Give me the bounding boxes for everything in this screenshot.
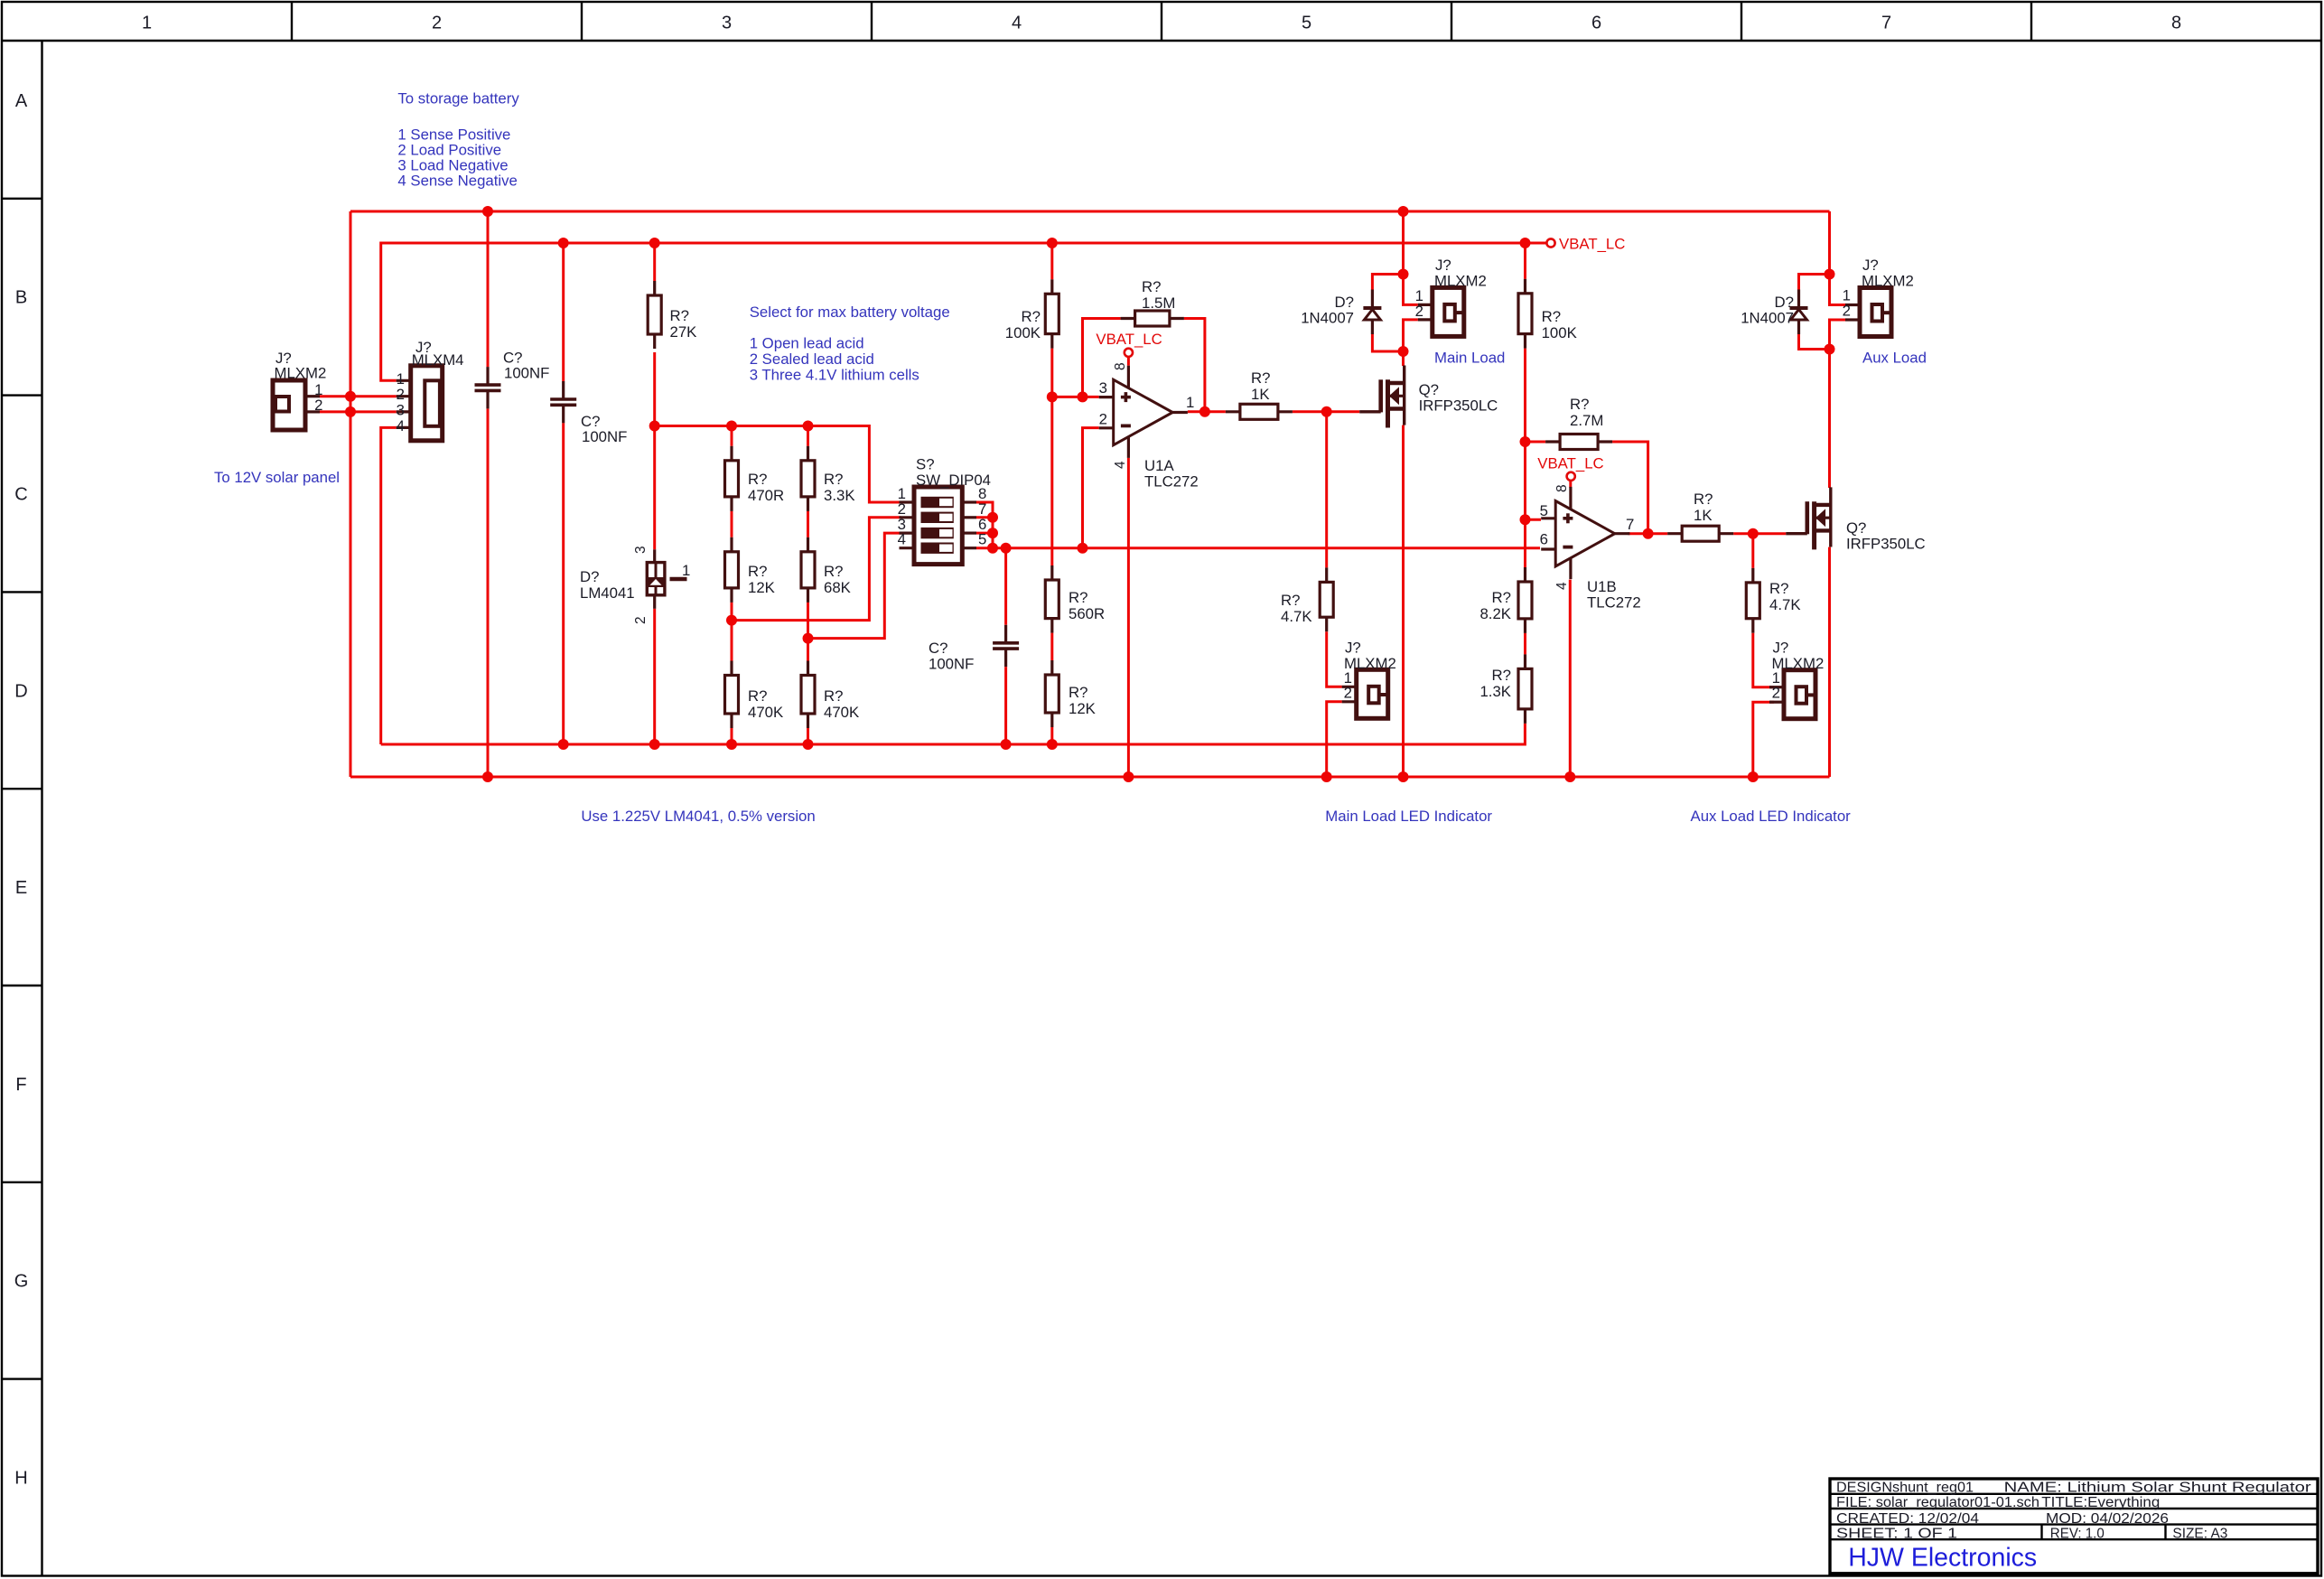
svg-text:470K: 470K [748, 704, 783, 721]
svg-text:5: 5 [978, 531, 986, 548]
svg-text:3 Three 4.1V lithium cells: 3 Three 4.1V lithium cells [750, 366, 919, 383]
svg-text:1: 1 [682, 562, 690, 579]
svg-text:8: 8 [1113, 362, 1128, 370]
svg-text:1 Open lead acid: 1 Open lead acid [750, 335, 864, 352]
svg-text:C?: C? [503, 349, 522, 366]
svg-text:100K: 100K [1542, 324, 1577, 341]
svg-text:1.3K: 1.3K [1479, 683, 1511, 700]
svg-text:7: 7 [1626, 516, 1634, 533]
svg-text:VBAT_LC: VBAT_LC [1537, 455, 1603, 472]
svg-text:2: 2 [1772, 685, 1780, 702]
svg-text:6: 6 [1540, 531, 1548, 548]
svg-text:3: 3 [722, 14, 732, 33]
svg-text:Select for max battery voltage: Select for max battery voltage [750, 304, 950, 321]
svg-text:Aux Load LED Indicator: Aux Load LED Indicator [1691, 808, 1852, 825]
svg-text:IRFP350LC: IRFP350LC [1846, 536, 1926, 553]
svg-text:B: B [15, 288, 27, 308]
svg-text:TLC272: TLC272 [1144, 473, 1199, 491]
svg-text:2: 2 [633, 616, 649, 624]
svg-text:MLXM2: MLXM2 [1862, 273, 1914, 290]
svg-text:J?: J? [1773, 640, 1789, 657]
svg-text:Use 1.225V LM4041, 0.5% versio: Use 1.225V LM4041, 0.5% version [581, 808, 815, 825]
svg-text:Aux Load: Aux Load [1862, 349, 1927, 366]
svg-text:1N4007: 1N4007 [1741, 310, 1794, 327]
svg-text:G: G [14, 1272, 29, 1292]
svg-text:1.5M: 1.5M [1142, 294, 1175, 312]
svg-text:12K: 12K [1069, 700, 1096, 717]
svg-text:1: 1 [1186, 394, 1194, 411]
svg-text:To storage battery: To storage battery [397, 89, 519, 107]
svg-text:U1B: U1B [1587, 578, 1617, 595]
svg-text:3: 3 [397, 401, 405, 418]
svg-text:U1A: U1A [1144, 457, 1174, 474]
svg-text:4.7K: 4.7K [1769, 596, 1801, 613]
svg-text:27K: 27K [670, 323, 697, 341]
svg-text:1K: 1K [1694, 507, 1713, 524]
svg-text:2: 2 [898, 500, 906, 518]
svg-text:D?: D? [580, 568, 599, 585]
svg-text:1: 1 [142, 14, 152, 33]
svg-text:68K: 68K [824, 579, 851, 596]
svg-text:2: 2 [314, 397, 322, 414]
svg-text:R?: R? [1069, 589, 1087, 606]
svg-text:MOD: 04/02/2026: MOD: 04/02/2026 [2046, 1511, 2169, 1527]
svg-text:R?: R? [1281, 592, 1300, 609]
svg-text:J?: J? [1435, 257, 1451, 274]
svg-text:1: 1 [397, 370, 405, 388]
svg-text:2: 2 [1344, 685, 1352, 702]
svg-text:4: 4 [1113, 461, 1128, 469]
svg-text:8: 8 [2171, 14, 2181, 33]
svg-text:Q?: Q? [1846, 519, 1866, 537]
svg-text:C?: C? [929, 640, 947, 657]
svg-text:SHEET: 1 OF 1: SHEET: 1 OF 1 [1836, 1527, 1957, 1542]
svg-text:R?: R? [1251, 369, 1270, 387]
svg-text:560R: 560R [1069, 605, 1105, 622]
svg-text:Q?: Q? [1419, 381, 1439, 398]
svg-text:HJW Electronics: HJW Electronics [1848, 1544, 2037, 1573]
svg-text:Main Load LED Indicator: Main Load LED Indicator [1325, 808, 1492, 825]
svg-text:VBAT_LC: VBAT_LC [1559, 236, 1625, 253]
svg-text:F: F [15, 1075, 26, 1095]
svg-text:R?: R? [1492, 589, 1511, 606]
svg-text:8: 8 [1554, 484, 1570, 492]
svg-text:TITLE:Everything: TITLE:Everything [2041, 1495, 2160, 1510]
svg-text:1K: 1K [1251, 386, 1270, 403]
svg-text:R?: R? [1022, 308, 1041, 325]
svg-text:3: 3 [633, 546, 649, 554]
svg-text:NAME: Lithium Solar Shunt Reg: NAME: Lithium Solar Shunt Regulator [2004, 1480, 2311, 1495]
svg-text:1N4007: 1N4007 [1301, 310, 1354, 327]
svg-text:Main Load: Main Load [1434, 349, 1505, 366]
svg-text:R?: R? [1542, 308, 1561, 325]
svg-text:J?: J? [1862, 257, 1879, 274]
svg-text:2: 2 [397, 386, 405, 403]
svg-text:100NF: 100NF [929, 656, 974, 673]
svg-text:CREATED: 12/02/04: CREATED: 12/02/04 [1836, 1511, 1979, 1527]
svg-text:4: 4 [898, 531, 906, 548]
svg-text:3: 3 [1099, 379, 1107, 397]
svg-text:DESIGNshunt_reg01: DESIGNshunt_reg01 [1836, 1480, 1974, 1495]
svg-text:100K: 100K [1005, 324, 1041, 341]
svg-text:R?: R? [1570, 396, 1589, 413]
svg-text:S?: S? [916, 456, 935, 473]
svg-text:4 Sense Negative: 4 Sense Negative [397, 172, 517, 189]
svg-text:4: 4 [1012, 14, 1022, 33]
svg-text:5: 5 [1540, 502, 1548, 519]
svg-text:C?: C? [581, 413, 600, 430]
svg-text:To 12V solar panel: To 12V solar panel [214, 469, 340, 486]
svg-text:D?: D? [1775, 294, 1794, 311]
svg-text:MLXM2: MLXM2 [275, 365, 327, 382]
svg-text:12K: 12K [748, 579, 775, 596]
svg-text:D: D [14, 681, 27, 701]
svg-text:R?: R? [748, 687, 767, 705]
svg-text:100NF: 100NF [504, 365, 549, 382]
svg-text:R?: R? [670, 307, 689, 324]
svg-text:R?: R? [1769, 580, 1788, 597]
svg-text:4: 4 [397, 417, 405, 434]
svg-text:E: E [15, 878, 27, 898]
svg-text:2: 2 [1099, 411, 1107, 428]
svg-text:7: 7 [978, 500, 986, 518]
svg-text:2: 2 [432, 14, 442, 33]
svg-text:R?: R? [1142, 278, 1161, 295]
svg-text:470K: 470K [824, 704, 859, 721]
svg-text:2 Sealed lead acid: 2 Sealed lead acid [750, 350, 874, 368]
svg-text:MLXM4: MLXM4 [412, 351, 464, 369]
svg-text:6: 6 [1591, 14, 1601, 33]
svg-text:R?: R? [1492, 667, 1511, 684]
svg-text:SIZE: A3: SIZE: A3 [2172, 1527, 2227, 1542]
svg-text:2: 2 [1415, 303, 1423, 320]
svg-text:IRFP350LC: IRFP350LC [1419, 397, 1498, 415]
svg-text:2: 2 [1843, 303, 1851, 320]
svg-text:470R: 470R [748, 487, 784, 504]
svg-text:2.7M: 2.7M [1570, 412, 1603, 429]
svg-text:R?: R? [824, 563, 843, 580]
svg-text:4.7K: 4.7K [1281, 608, 1312, 625]
svg-text:MLXM2: MLXM2 [1434, 273, 1487, 290]
svg-text:R?: R? [748, 471, 767, 488]
svg-text:100NF: 100NF [582, 428, 627, 445]
svg-text:3.3K: 3.3K [824, 487, 855, 504]
svg-text:R?: R? [1069, 684, 1087, 701]
svg-text:FILE: solar_regulator01-01.sch: FILE: solar_regulator01-01.sch [1836, 1495, 2039, 1510]
svg-text:7: 7 [1881, 14, 1891, 33]
svg-text:R?: R? [824, 471, 843, 488]
svg-text:VBAT_LC: VBAT_LC [1096, 331, 1162, 348]
svg-text:R?: R? [824, 687, 843, 705]
svg-text:LM4041: LM4041 [580, 584, 635, 602]
svg-text:R?: R? [748, 563, 767, 580]
svg-text:4: 4 [1554, 582, 1570, 590]
svg-text:A: A [15, 91, 28, 111]
svg-text:5: 5 [1302, 14, 1311, 33]
svg-text:H: H [14, 1469, 27, 1489]
svg-text:TLC272: TLC272 [1587, 594, 1641, 612]
svg-text:8.2K: 8.2K [1479, 605, 1511, 622]
svg-text:C: C [14, 485, 27, 505]
svg-text:R?: R? [1694, 491, 1713, 508]
svg-text:D?: D? [1335, 294, 1354, 311]
svg-text:J?: J? [1345, 640, 1361, 657]
svg-text:REV: 1.0: REV: 1.0 [2050, 1527, 2105, 1542]
